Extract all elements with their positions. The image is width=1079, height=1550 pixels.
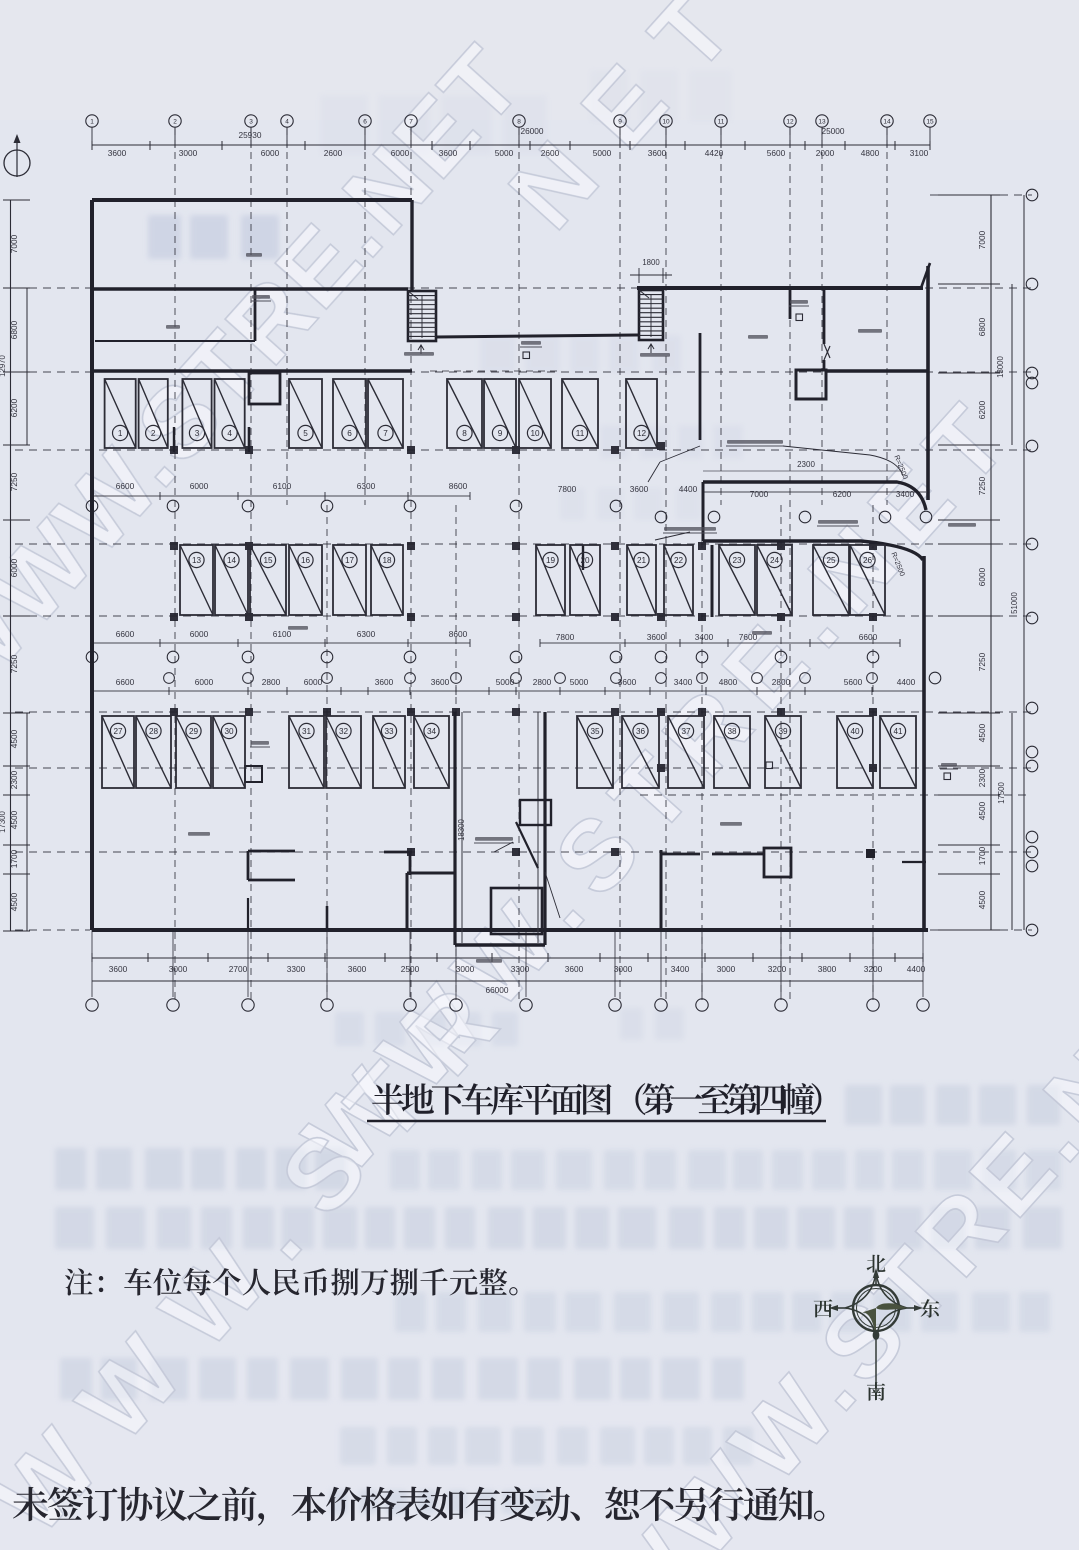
svg-text:14: 14	[883, 118, 891, 125]
svg-text:3600: 3600	[375, 677, 394, 687]
svg-text:4420: 4420	[705, 148, 724, 158]
svg-text:6000: 6000	[261, 148, 280, 158]
svg-text:38: 38	[727, 727, 737, 736]
svg-text:3: 3	[249, 118, 253, 125]
svg-text:3300: 3300	[511, 964, 530, 974]
svg-text:19: 19	[546, 556, 556, 565]
svg-text:4: 4	[227, 429, 232, 438]
svg-text:3600: 3600	[108, 148, 127, 158]
svg-text:3400: 3400	[674, 677, 693, 687]
svg-text:4: 4	[285, 118, 289, 125]
svg-text:12: 12	[786, 118, 794, 125]
svg-text:4500: 4500	[9, 892, 19, 911]
svg-text:7000: 7000	[9, 234, 19, 253]
svg-text:21: 21	[637, 556, 647, 565]
svg-text:3600: 3600	[431, 677, 450, 687]
svg-text:3400: 3400	[695, 632, 714, 642]
svg-text:6000: 6000	[391, 148, 410, 158]
svg-text:6200: 6200	[9, 398, 19, 417]
svg-text:5600: 5600	[844, 677, 863, 687]
svg-text:2300: 2300	[797, 460, 815, 469]
svg-text:3200: 3200	[768, 964, 787, 974]
svg-text:2600: 2600	[541, 148, 560, 158]
svg-text:6600: 6600	[859, 632, 878, 642]
svg-text:3: 3	[195, 429, 200, 438]
svg-text:6800: 6800	[9, 320, 19, 339]
svg-text:7250: 7250	[9, 654, 19, 673]
svg-text:30: 30	[224, 727, 234, 736]
svg-text:6: 6	[363, 118, 367, 125]
svg-text:13000: 13000	[996, 355, 1005, 377]
svg-text:6600: 6600	[116, 481, 135, 491]
svg-text:26000: 26000	[520, 126, 543, 136]
svg-text:8600: 8600	[449, 629, 468, 639]
svg-text:18300: 18300	[457, 818, 466, 840]
svg-text:6200: 6200	[833, 489, 852, 499]
svg-text:7000: 7000	[977, 230, 987, 249]
svg-text:5000: 5000	[495, 148, 514, 158]
svg-text:8: 8	[517, 118, 521, 125]
svg-text:16: 16	[301, 556, 311, 565]
svg-text:1800: 1800	[642, 258, 660, 267]
svg-text:13: 13	[818, 118, 826, 125]
svg-text:10: 10	[662, 118, 670, 125]
svg-text:3600: 3600	[348, 964, 367, 974]
svg-text:2800: 2800	[533, 677, 552, 687]
svg-text:26: 26	[863, 556, 873, 565]
svg-text:11: 11	[576, 429, 585, 438]
svg-text:13: 13	[192, 556, 202, 565]
svg-text:3000: 3000	[169, 964, 188, 974]
svg-text:3600: 3600	[648, 148, 667, 158]
svg-text:6: 6	[347, 429, 352, 438]
svg-text:5600: 5600	[767, 148, 786, 158]
svg-text:6000: 6000	[190, 629, 209, 639]
svg-text:2700: 2700	[229, 964, 248, 974]
svg-text:6200: 6200	[977, 400, 987, 419]
svg-text:6000: 6000	[9, 558, 19, 577]
svg-text:6600: 6600	[116, 629, 135, 639]
svg-text:6100: 6100	[273, 629, 292, 639]
svg-text:1: 1	[90, 118, 94, 125]
svg-text:18: 18	[382, 556, 392, 565]
svg-text:34: 34	[427, 727, 437, 736]
svg-text:3600: 3600	[439, 148, 458, 158]
svg-text:2800: 2800	[262, 677, 281, 687]
svg-text:2300: 2300	[9, 770, 19, 789]
svg-text:33: 33	[384, 727, 394, 736]
svg-text:7250: 7250	[977, 476, 987, 495]
svg-text:17500: 17500	[997, 781, 1006, 803]
svg-text:3100: 3100	[910, 148, 929, 158]
svg-text:6000: 6000	[304, 677, 323, 687]
svg-text:6600: 6600	[116, 677, 135, 687]
svg-text:22: 22	[674, 556, 684, 565]
svg-text:3600: 3600	[630, 484, 649, 494]
svg-text:28: 28	[149, 727, 159, 736]
svg-text:4500: 4500	[977, 723, 987, 742]
svg-text:2000: 2000	[816, 148, 835, 158]
svg-text:3000: 3000	[456, 964, 475, 974]
svg-text:3600: 3600	[647, 632, 666, 642]
svg-text:2600: 2600	[324, 148, 343, 158]
svg-text:6000: 6000	[190, 481, 209, 491]
svg-text:6300: 6300	[357, 629, 376, 639]
svg-text:24: 24	[770, 556, 780, 565]
svg-text:1: 1	[118, 429, 123, 438]
svg-text:15: 15	[926, 118, 934, 125]
svg-text:25: 25	[826, 556, 836, 565]
svg-text:10: 10	[530, 429, 540, 438]
svg-text:5000: 5000	[570, 677, 589, 687]
svg-text:25930: 25930	[238, 130, 261, 140]
svg-text:11: 11	[718, 118, 725, 125]
svg-text:35: 35	[590, 727, 600, 736]
svg-text:3400: 3400	[671, 964, 690, 974]
svg-text:12970: 12970	[0, 354, 7, 376]
svg-text:2300: 2300	[977, 768, 987, 787]
svg-text:4800: 4800	[861, 148, 880, 158]
svg-text:27: 27	[113, 727, 123, 736]
svg-text:66000: 66000	[485, 985, 508, 995]
svg-text:41: 41	[893, 727, 903, 736]
svg-text:14: 14	[227, 556, 237, 565]
svg-text:6000: 6000	[977, 567, 987, 586]
svg-text:31: 31	[302, 727, 312, 736]
svg-text:3000: 3000	[179, 148, 198, 158]
svg-text:7000: 7000	[750, 489, 769, 499]
svg-text:4500: 4500	[9, 810, 19, 829]
svg-text:17300: 17300	[0, 810, 7, 832]
svg-text:3000: 3000	[614, 964, 633, 974]
svg-text:7: 7	[409, 118, 413, 125]
svg-text:3400: 3400	[896, 489, 915, 499]
svg-text:7: 7	[383, 429, 388, 438]
svg-text:32: 32	[339, 727, 349, 736]
svg-text:7800: 7800	[558, 484, 577, 494]
svg-text:3300: 3300	[287, 964, 306, 974]
svg-text:12: 12	[637, 429, 647, 438]
svg-text:51000: 51000	[1010, 591, 1019, 613]
svg-text:2: 2	[173, 118, 177, 125]
svg-text:6100: 6100	[273, 481, 292, 491]
svg-text:7800: 7800	[556, 632, 575, 642]
svg-text:4500: 4500	[977, 801, 987, 820]
svg-text:6000: 6000	[195, 677, 214, 687]
svg-text:40: 40	[850, 727, 860, 736]
svg-text:7250: 7250	[977, 652, 987, 671]
svg-text:4500: 4500	[977, 890, 987, 909]
svg-text:7250: 7250	[9, 472, 19, 491]
svg-text:25000: 25000	[821, 126, 844, 136]
svg-text:8: 8	[462, 429, 467, 438]
svg-text:4400: 4400	[897, 677, 916, 687]
svg-text:15: 15	[263, 556, 273, 565]
svg-text:9: 9	[498, 429, 503, 438]
svg-text:5: 5	[303, 429, 308, 438]
svg-text:8600: 8600	[449, 481, 468, 491]
svg-text:4800: 4800	[719, 677, 738, 687]
svg-text:29: 29	[189, 727, 199, 736]
svg-text:3600: 3600	[618, 677, 637, 687]
svg-text:3800: 3800	[818, 964, 837, 974]
svg-text:5000: 5000	[593, 148, 612, 158]
svg-text:3600: 3600	[109, 964, 128, 974]
svg-text:1700: 1700	[977, 846, 987, 865]
svg-text:9: 9	[618, 118, 622, 125]
svg-text:6300: 6300	[357, 481, 376, 491]
svg-text:2: 2	[151, 429, 156, 438]
svg-text:17: 17	[345, 556, 355, 565]
svg-text:4400: 4400	[679, 484, 698, 494]
svg-text:4500: 4500	[9, 729, 19, 748]
svg-text:37: 37	[681, 727, 691, 736]
svg-text:36: 36	[636, 727, 646, 736]
svg-text:3600: 3600	[565, 964, 584, 974]
svg-text:6800: 6800	[977, 317, 987, 336]
svg-text:23: 23	[732, 556, 742, 565]
svg-text:1700: 1700	[9, 849, 19, 868]
svg-text:20: 20	[580, 556, 590, 565]
svg-text:3000: 3000	[717, 964, 736, 974]
svg-text:39: 39	[778, 727, 788, 736]
svg-text:2800: 2800	[772, 677, 791, 687]
